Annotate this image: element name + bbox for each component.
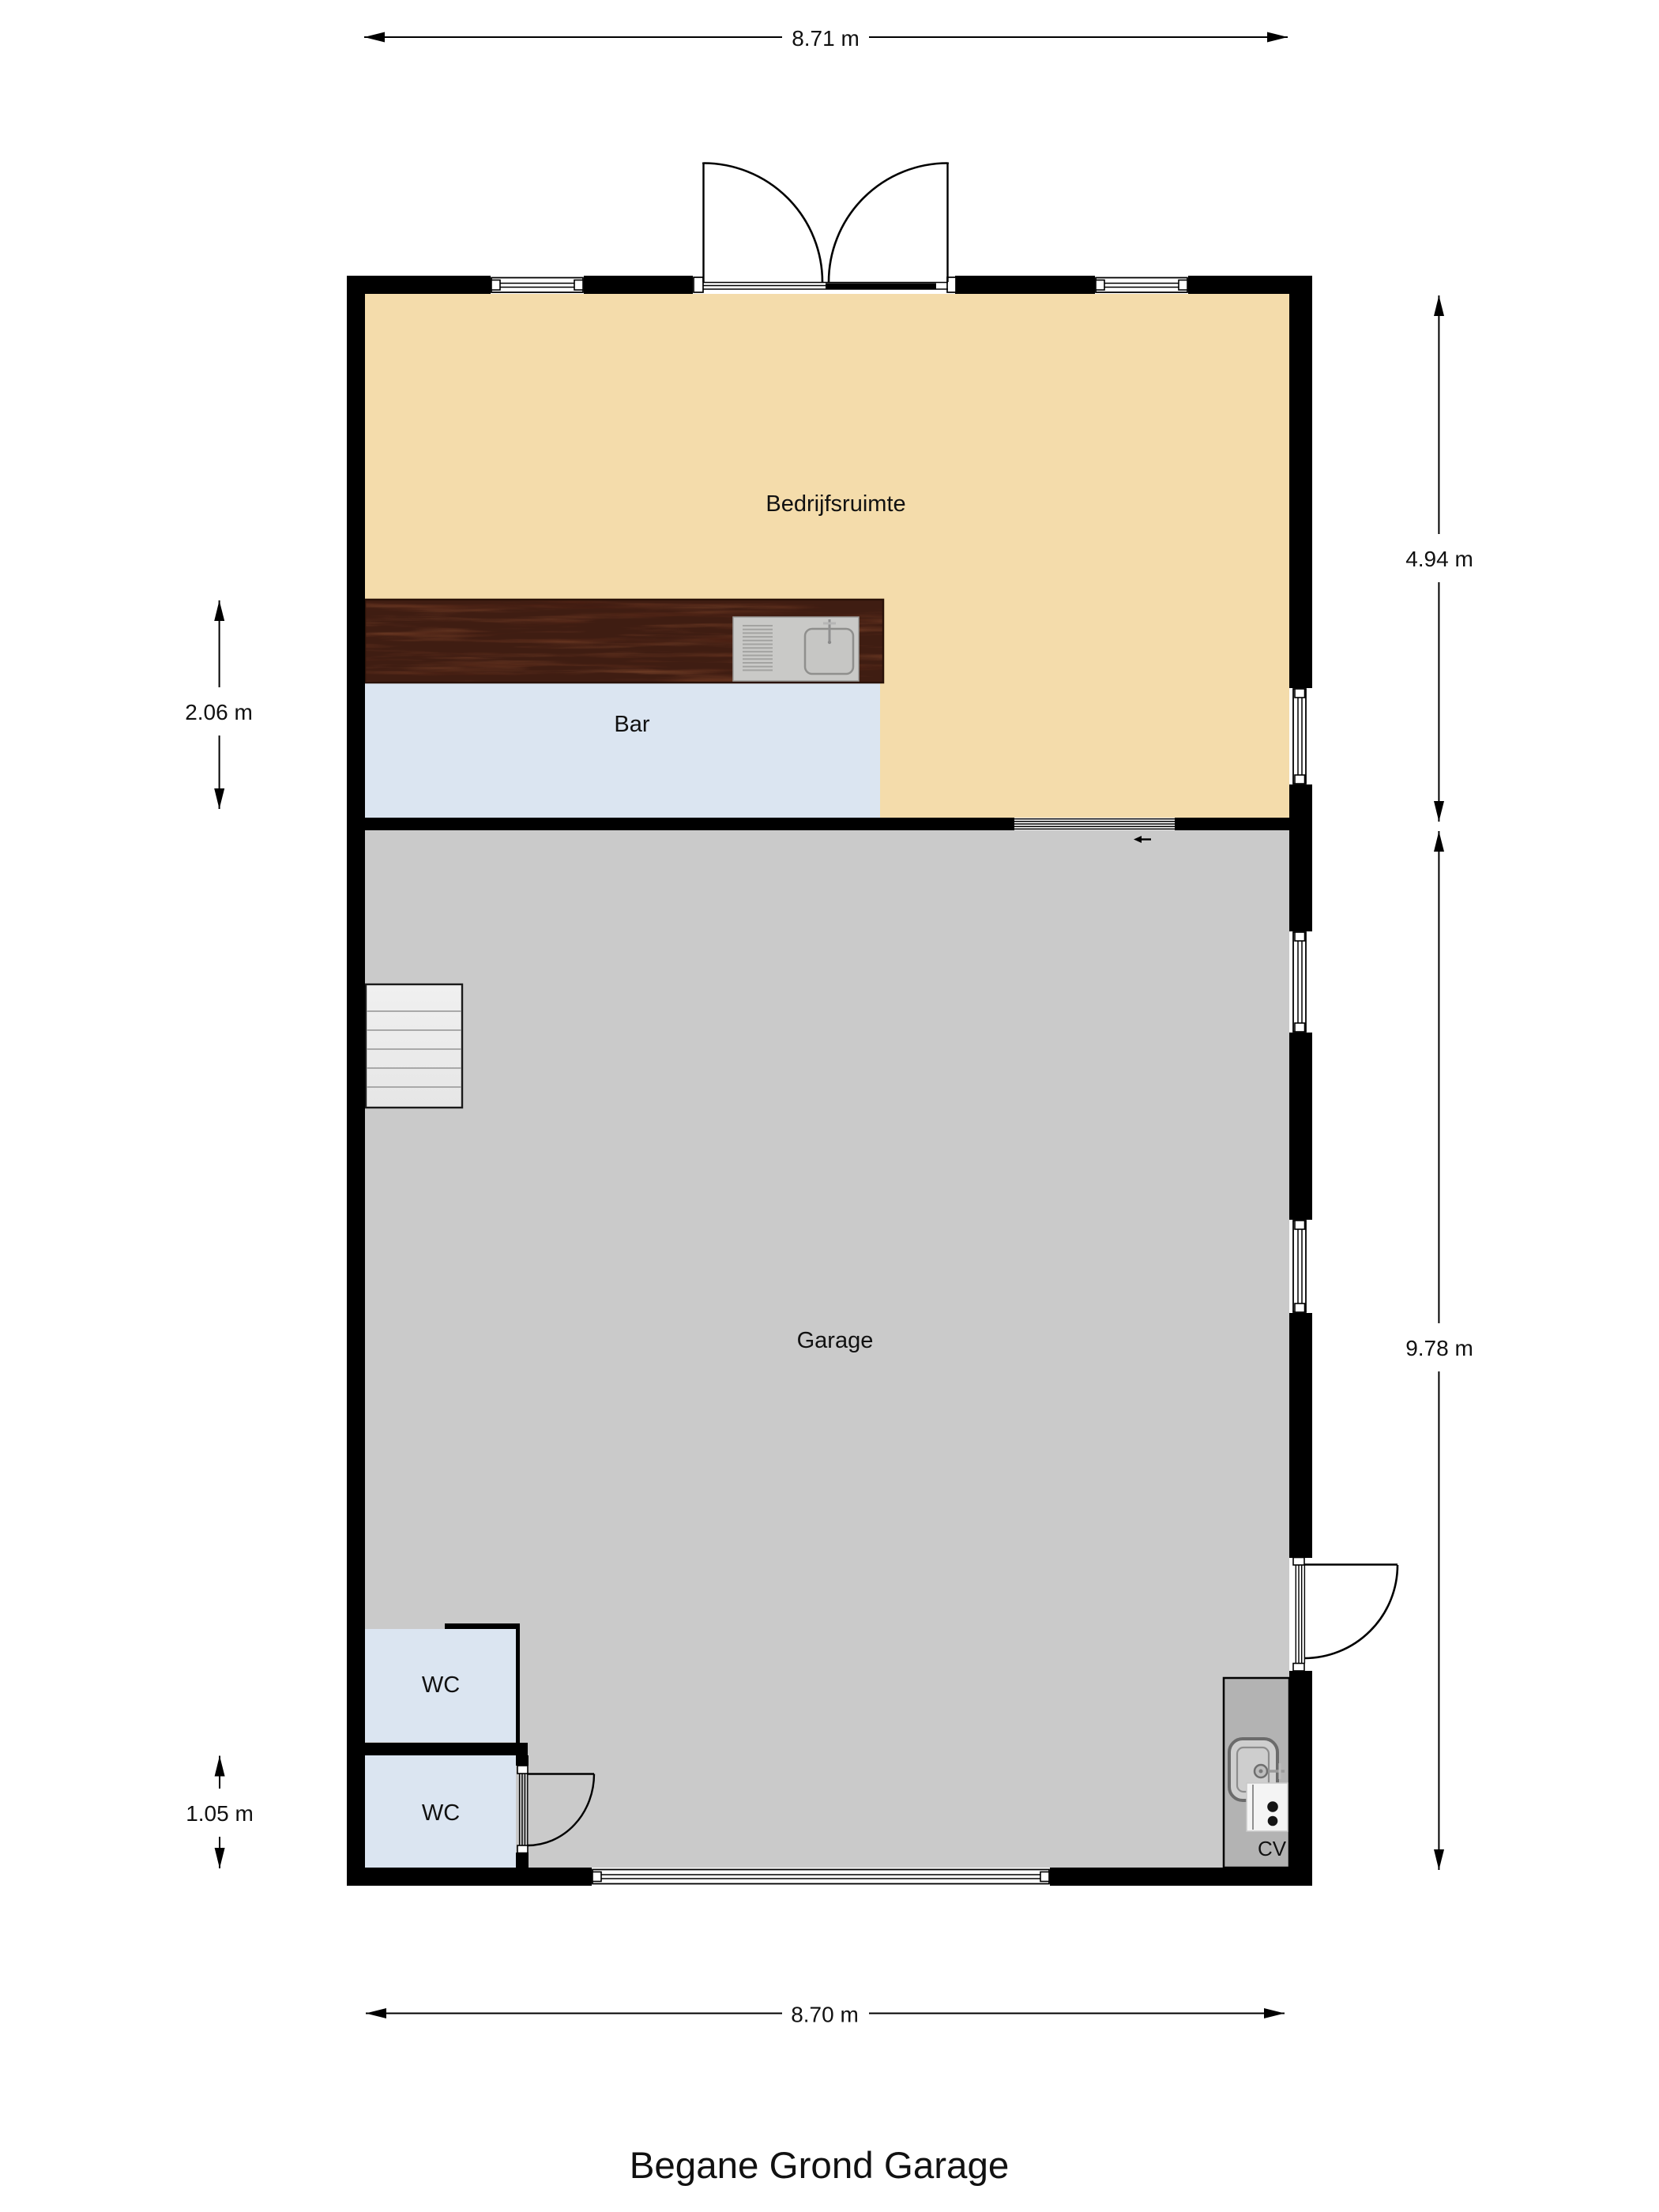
svg-text:WC: WC <box>422 1800 460 1826</box>
svg-text:Bar: Bar <box>614 712 649 737</box>
svg-text:WC: WC <box>422 1672 460 1698</box>
svg-text:2.06 m: 2.06 m <box>185 700 253 724</box>
svg-text:4.94 m: 4.94 m <box>1405 547 1473 571</box>
svg-text:9.78 m: 9.78 m <box>1405 1336 1473 1360</box>
svg-text:Bedrijfsruimte: Bedrijfsruimte <box>766 491 905 517</box>
svg-text:CV: CV <box>1258 1837 1287 1860</box>
svg-text:1.05 m: 1.05 m <box>186 1801 254 1826</box>
svg-text:8.70 m: 8.70 m <box>791 2003 859 2027</box>
svg-text:Garage: Garage <box>797 1328 874 1353</box>
svg-text:8.71 m: 8.71 m <box>792 26 860 51</box>
svg-text:Begane Grond Garage: Begane Grond Garage <box>630 2145 1010 2187</box>
